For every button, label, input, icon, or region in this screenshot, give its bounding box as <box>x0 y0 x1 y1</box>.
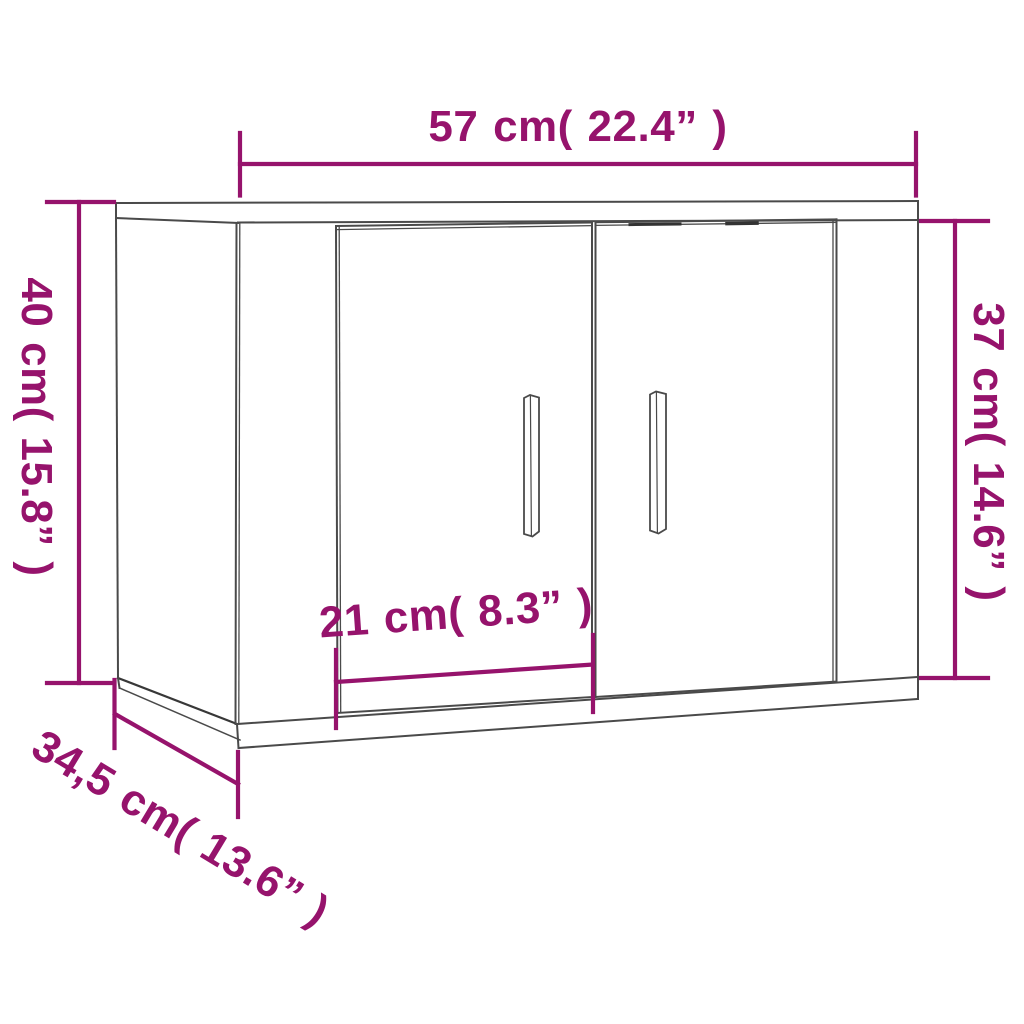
dimension-lines <box>47 133 988 817</box>
dimension-label-width: 57 cm( 22.4” ) <box>428 105 727 149</box>
cabinet-line-drawing-svg <box>0 0 1024 1024</box>
dimension-diagram: 57 cm( 22.4” ) 40 cm( 15.8” ) 37 cm( 14.… <box>0 0 1024 1024</box>
door-top-fitting-mark <box>630 224 680 225</box>
dimension-label-height-back: 40 cm( 15.8” ) <box>14 277 58 576</box>
cabinet-carcass <box>116 201 918 748</box>
cabinet-right-door <box>596 219 837 697</box>
cabinet-drawing <box>116 201 918 748</box>
door-handle-left <box>524 395 539 537</box>
dimension-label-height-front: 37 cm( 14.6” ) <box>966 302 1010 601</box>
door-handle-right <box>650 392 666 534</box>
